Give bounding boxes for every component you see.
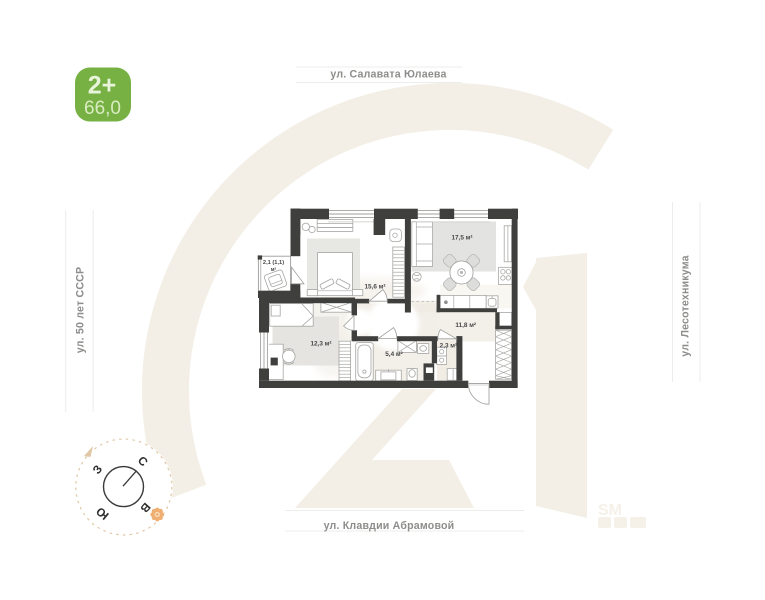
- svg-text:ул. 50 лет СССР: ул. 50 лет СССР: [75, 267, 87, 354]
- svg-text:12,3 м²: 12,3 м²: [310, 340, 331, 347]
- svg-text:15,6 м²: 15,6 м²: [364, 284, 385, 291]
- svg-text:ул. Салавата Юлаева: ул. Салавата Юлаева: [330, 68, 446, 80]
- svg-text:2+: 2+: [88, 72, 117, 100]
- svg-text:66,0: 66,0: [84, 98, 121, 119]
- svg-text:2,3 м²: 2,3 м²: [440, 342, 458, 349]
- svg-text:5,4 м²: 5,4 м²: [385, 351, 403, 358]
- svg-text:ул. Клавдии Абрамовой: ул. Клавдии Абрамовой: [324, 520, 455, 532]
- svg-text:11,8 м²: 11,8 м²: [455, 322, 476, 329]
- svg-text:17,5 м²: 17,5 м²: [451, 235, 472, 242]
- svg-text:2,1 (1,1): 2,1 (1,1): [263, 260, 284, 266]
- svg-text:ул. Лесотехникума: ул. Лесотехникума: [680, 255, 692, 356]
- svg-text:м²: м²: [271, 267, 277, 273]
- svg-text:SM: SM: [598, 502, 622, 519]
